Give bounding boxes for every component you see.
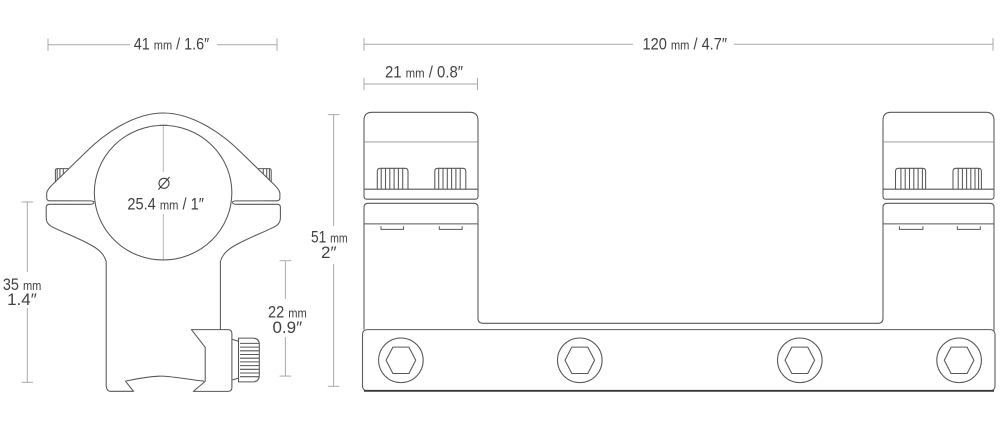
svg-text:0.9″: 0.9″ xyxy=(272,318,302,337)
svg-text:120 mm / 4.7″: 120 mm / 4.7″ xyxy=(643,34,728,53)
svg-text:25.4 mm / 1″: 25.4 mm / 1″ xyxy=(127,195,204,214)
svg-text:41 mm / 1.6″: 41 mm / 1.6″ xyxy=(134,35,209,54)
svg-text:2″: 2″ xyxy=(321,243,336,262)
svg-text:1.4″: 1.4″ xyxy=(7,290,37,309)
svg-text:21 mm / 0.8″: 21 mm / 0.8″ xyxy=(385,63,463,82)
